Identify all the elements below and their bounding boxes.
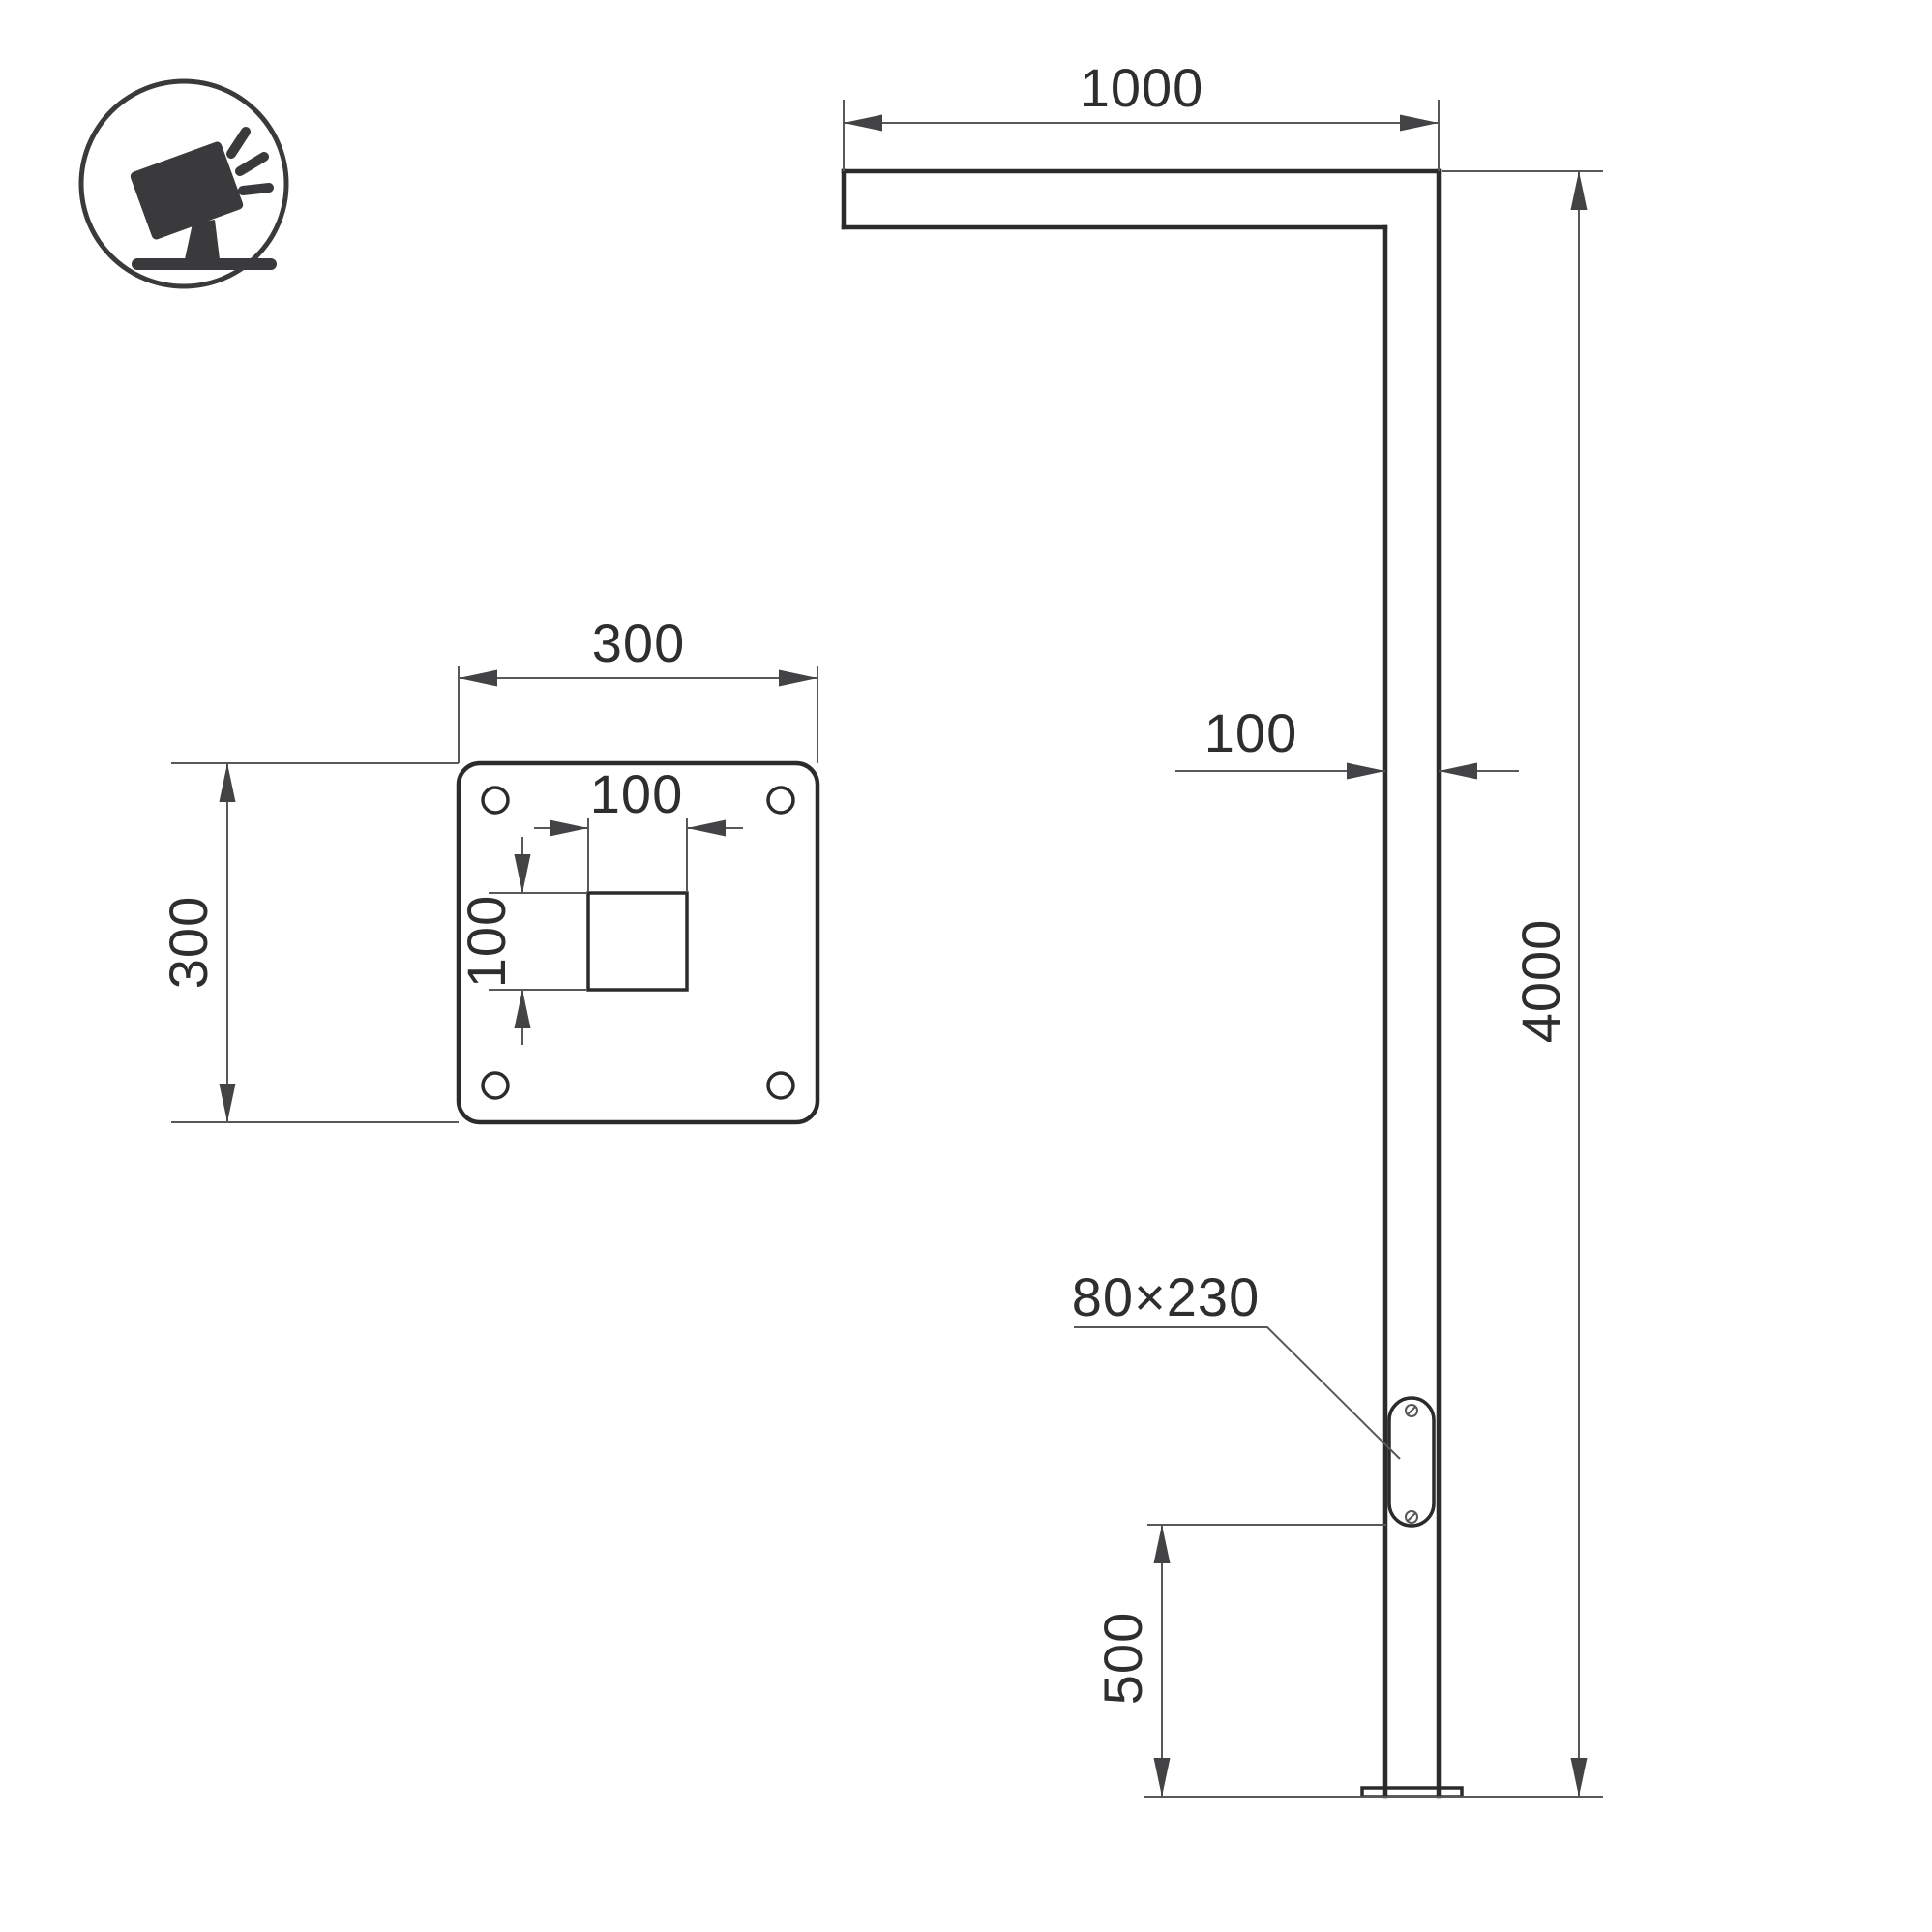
arrowhead-bottom	[1154, 1758, 1171, 1797]
door-screw-bottom-slot	[1408, 1513, 1415, 1521]
leader-line	[1074, 1327, 1400, 1459]
light-ray-middle	[240, 157, 264, 171]
arrowhead-top	[515, 854, 531, 893]
dim-plate-width: 300	[459, 612, 817, 763]
arrowhead-bottom	[220, 1084, 236, 1122]
arrowhead-right	[1400, 115, 1439, 132]
bolt-hole-top-left	[483, 788, 508, 813]
floodlight-icon	[81, 81, 286, 286]
dim-door-height: 500	[1092, 1525, 1386, 1797]
dim-pole-height: 4000	[1442, 171, 1603, 1797]
dim-hole-height: 100	[456, 837, 586, 1045]
dim-label-1000: 1000	[1080, 57, 1204, 118]
door-screw-top-slot	[1408, 1407, 1415, 1414]
dim-pole-width: 100	[1175, 702, 1519, 780]
dim-label-4000: 4000	[1510, 919, 1571, 1044]
arrowhead-top	[1571, 171, 1588, 210]
bolt-hole-top-right	[768, 788, 793, 813]
technical-drawing: 1000 100 4000 500 80×230 300	[0, 0, 1932, 1932]
dim-label-100-v: 100	[456, 895, 517, 988]
bolt-hole-bottom-left	[483, 1073, 508, 1098]
light-ray-bottom	[243, 188, 269, 191]
drawing-canvas: 1000 100 4000 500 80×230 300	[0, 0, 1932, 1932]
arrowhead-bottom	[515, 990, 531, 1028]
dim-arm-length: 1000	[844, 57, 1439, 171]
arrowhead-top	[220, 763, 236, 802]
center-square-hole	[588, 893, 687, 990]
arrowhead-left	[844, 115, 882, 132]
pole-front-view	[844, 171, 1462, 1797]
arrowhead-right	[1439, 763, 1477, 780]
dim-label-100: 100	[1204, 702, 1297, 763]
arrowhead-right	[779, 670, 817, 687]
floodlight-base	[132, 258, 277, 270]
arrowhead-top	[1154, 1525, 1171, 1563]
arrowhead-bottom	[1571, 1758, 1588, 1797]
arrowhead-left	[550, 820, 588, 837]
door-size-label: 80×230	[1072, 1266, 1260, 1327]
base-plate-side-view	[1362, 1788, 1462, 1797]
dim-label-100-h: 100	[590, 763, 683, 824]
dim-plate-height: 300	[158, 763, 459, 1122]
arrowhead-left	[459, 670, 497, 687]
arrowhead-right	[687, 820, 726, 837]
arrowhead-left	[1347, 763, 1385, 780]
dim-label-300-h: 300	[592, 612, 685, 673]
door-size-leader: 80×230	[1072, 1266, 1400, 1459]
dim-hole-width: 100	[534, 763, 743, 891]
access-door	[1389, 1398, 1434, 1526]
dim-label-500: 500	[1092, 1612, 1153, 1705]
light-ray-top	[231, 132, 246, 154]
dim-label-300-v: 300	[158, 896, 219, 989]
bolt-hole-bottom-right	[768, 1073, 793, 1098]
